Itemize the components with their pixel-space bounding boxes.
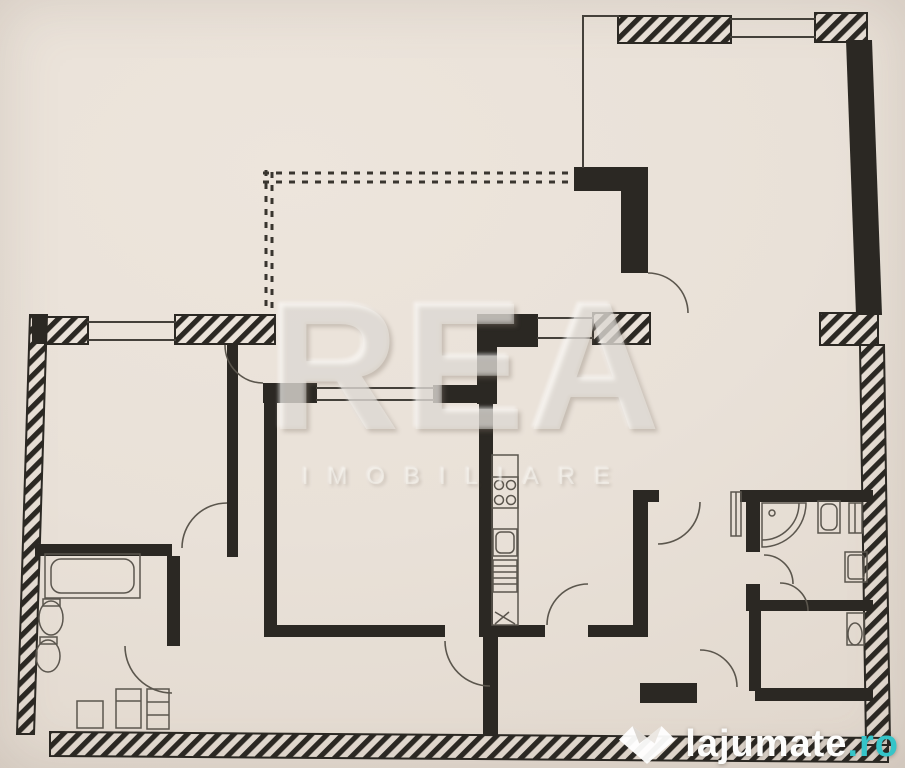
balcony-dashed-outline xyxy=(263,170,577,310)
bath2-bottom-wall xyxy=(755,600,873,611)
kitchen-top-wall-block xyxy=(593,313,650,344)
bedroom2-left-wall xyxy=(264,403,277,637)
bathroom1-right-wall xyxy=(167,556,180,646)
living-left-wall xyxy=(621,190,648,273)
living-top-wall-left xyxy=(618,16,731,43)
door-entry xyxy=(700,650,737,687)
living-right-wall-block xyxy=(820,313,878,345)
living-top-wall-right xyxy=(815,13,867,42)
shower xyxy=(762,503,806,547)
door-living-balcony xyxy=(648,273,688,313)
cabinet-a xyxy=(77,701,103,728)
floor-plan-drawing xyxy=(0,0,905,768)
kitchen-top-wall xyxy=(477,314,538,347)
bathtub-inner xyxy=(51,559,134,593)
entry-wall xyxy=(640,683,697,703)
stove-burner-1 xyxy=(495,481,504,490)
wc-bottom-wall xyxy=(755,688,873,701)
wc-toilet-bowl xyxy=(848,623,862,645)
interior-solid-walls xyxy=(32,40,882,735)
living-right-wall xyxy=(846,40,882,315)
door-kitchen xyxy=(547,584,588,625)
kitchen-cabinet xyxy=(493,560,517,592)
stove-burner-3 xyxy=(495,496,504,505)
hall-bottom-wall-a xyxy=(277,625,445,637)
bedroom1-right-wall xyxy=(227,345,238,557)
living-left-wall-top xyxy=(574,167,648,191)
counter-end-mark xyxy=(495,612,515,624)
stove-burner-2 xyxy=(507,481,516,490)
bidet-bowl xyxy=(36,640,60,672)
floor-plan-scan: REA IMOBILIARE lajumate.ro xyxy=(0,0,905,768)
bedroom1-top-wall-left xyxy=(45,317,88,344)
bedroom2-top-wall-right xyxy=(433,385,491,403)
kitchen-right-wall xyxy=(633,490,648,637)
bath2-sink-basin xyxy=(821,504,837,530)
bath2-top-wall xyxy=(740,490,873,502)
door-bedroom1-bottom xyxy=(182,503,227,548)
right-exterior-wall xyxy=(860,345,890,745)
kitchen-sink-basin xyxy=(496,532,514,553)
cabinet-b xyxy=(116,689,141,728)
shower-drain xyxy=(769,510,775,516)
door-bathroom1 xyxy=(125,646,172,693)
stove-burner-4 xyxy=(507,496,516,505)
wc-left-wall xyxy=(749,611,761,691)
bathtub xyxy=(45,554,140,598)
kitchen-right-stub xyxy=(633,490,659,502)
kitchen-left-wall xyxy=(479,403,493,637)
corner-top-left xyxy=(32,316,47,344)
door-hallway xyxy=(658,502,700,544)
bottom-exterior-wall xyxy=(50,732,888,762)
cabinet-c xyxy=(147,689,169,729)
door-bathroom2 xyxy=(764,555,793,584)
hall-bottom-wall-b xyxy=(490,625,545,637)
bedroom1-top-wall-right xyxy=(175,315,275,344)
bath2-left-wall-top xyxy=(746,500,760,552)
bedroom2-top-wall-left xyxy=(263,383,317,403)
washing-machine-inner xyxy=(848,555,864,579)
